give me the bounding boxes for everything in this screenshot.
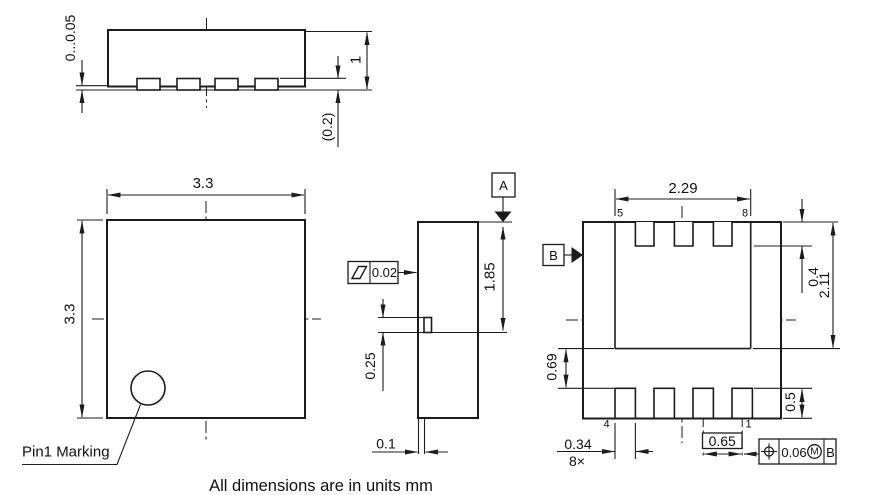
position-modifier: M [810,447,818,458]
dim-pad-length: 2.11 [816,272,832,298]
dim-lead-length-bottom: 0.5 [782,392,798,412]
dim-lead-standoff: (0.2) [319,113,335,142]
terminal-notch [635,222,654,246]
lead [137,79,160,91]
bottom-view: B 2.29 5 8 4 1 0.4 2.11 0.69 0.5 [543,180,840,469]
pin4-label: 4 [603,419,609,431]
front-view: A 1.85 0.02 0.25 0.1 [348,173,515,454]
drawing-canvas: 0...0.05 1 (0.2) Pin1 Marking 3.3 3.3 [0,0,880,495]
lead [255,79,278,91]
position-tolerance-frame: 0.06 M B [759,439,836,464]
dim-pitch: 0.65 [709,433,736,449]
dim-body-width: 3.3 [193,175,214,192]
dim-lead-height: 0.25 [362,352,378,379]
terminal-notch [674,222,693,246]
dim-standoff: 0...0.05 [62,14,78,61]
lead-count-label: 8× [569,453,585,469]
dim-lead-width: 0.34 [564,436,591,452]
dim-height-to-lead: 1.85 [482,262,499,291]
position-datum-ref: B [826,445,835,460]
dim-body-height: 1 [348,56,365,64]
dim-pad-to-lead-gap: 0.69 [544,353,560,380]
terminal [615,388,635,418]
datum-b-label: B [549,248,558,263]
position-tolerance-value: 0.06 [781,445,806,460]
terminal [732,388,752,418]
pin8-label: 8 [742,208,748,220]
flatness-tolerance: 0.02 [372,265,397,280]
terminal [693,388,713,418]
terminal [654,388,674,418]
side-lead [424,318,432,333]
lead [177,79,200,91]
top-view: Pin1 Marking 3.3 3.3 [22,175,321,465]
pin1-marking-circle [131,371,165,405]
dim-pad-width: 2.29 [668,180,697,197]
datum-b-triangle-icon [572,247,584,263]
dim-lead-thickness: 0.1 [376,436,396,452]
package-outline-drawing: 0...0.05 1 (0.2) Pin1 Marking 3.3 3.3 [0,0,880,495]
pin1-label: 1 [745,419,751,431]
pin5-label: 5 [617,208,623,220]
terminal-notch [713,222,732,246]
dim-body-height2: 3.3 [62,304,79,325]
lead [215,79,238,91]
datum-a-label: A [499,178,508,193]
datum-a-triangle-icon [495,212,512,223]
pin1-marking-label: Pin1 Marking [22,444,110,461]
units-note: All dimensions are in units mm [209,477,433,495]
side-view: 0...0.05 1 (0.2) [62,14,372,147]
